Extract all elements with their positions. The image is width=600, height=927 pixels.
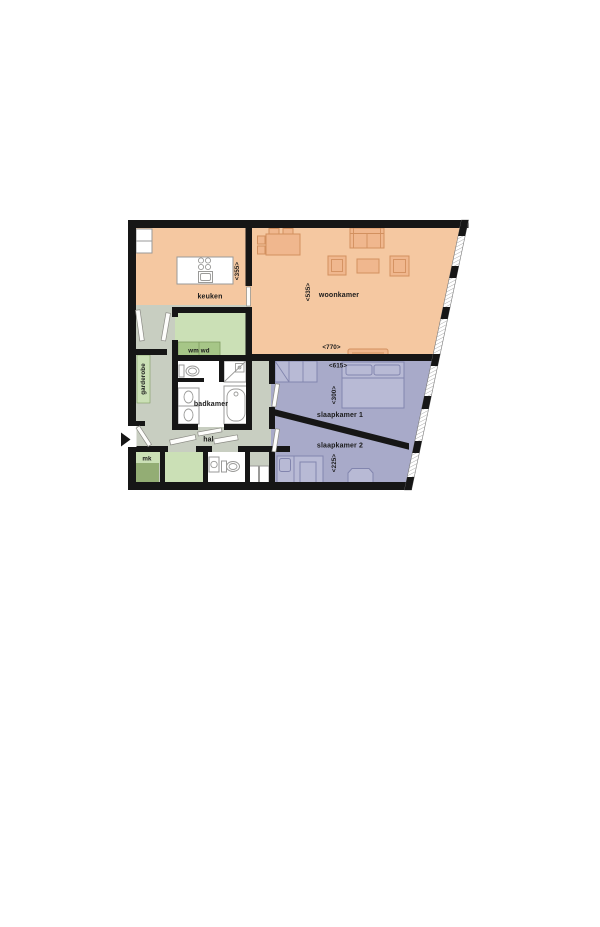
wall-bathroom-left — [172, 361, 178, 430]
pillow — [374, 365, 400, 375]
armchair — [328, 256, 346, 275]
dim-keuken-depth: <355> — [234, 262, 241, 281]
dim-slaapkamer1-height: <300> — [331, 386, 338, 405]
entrance-gap — [128, 426, 137, 447]
wall-hall-bedroom-c — [269, 452, 275, 487]
wall-top — [128, 220, 469, 228]
floor-plan-page: keuken <355> woonkamer <535> <770> wm wd… — [0, 0, 600, 927]
wall-kitchen-bottom — [172, 307, 252, 313]
label-woonkamer: woonkamer — [318, 292, 359, 299]
pillow — [280, 459, 291, 472]
wall-storage-wc — [203, 446, 208, 487]
kitchen-tall-cabinet — [136, 229, 152, 241]
wall-wmwd-right — [246, 307, 253, 361]
wall-wc-right — [245, 446, 250, 487]
wall-kitchen-living — [246, 220, 253, 286]
wall-wmwd-left-a — [172, 307, 178, 317]
wall-toilet-stub — [178, 378, 204, 382]
wall-living-bedroom — [250, 354, 433, 361]
kitchen-tall-cabinet — [136, 241, 152, 253]
wall-bathroom-right — [246, 361, 252, 430]
wall-bathroom-bottom-a — [172, 424, 198, 430]
dim-woonkamer-height: <535> — [305, 283, 312, 302]
dining-chair — [258, 236, 266, 244]
label-slaapkamer1: slaapkamer 1 — [317, 412, 363, 419]
label-garderobe: garderobe — [140, 363, 147, 395]
room-storage-fill — [163, 452, 203, 484]
label-slaapkamer2: slaapkamer 2 — [317, 443, 363, 450]
toilet-tank — [179, 365, 184, 377]
label-mk: mk — [142, 456, 152, 463]
dim-slaapkamer2-height: <225> — [331, 454, 338, 473]
cabinet — [300, 462, 316, 483]
wardrobe-bedroom2 — [348, 469, 373, 485]
room-mk-dark-fill — [136, 463, 159, 483]
pillow — [346, 365, 372, 375]
wall-bathroom-bottom-b — [224, 424, 252, 430]
wall-mk-right — [160, 446, 165, 487]
dim-woonkamer-width: <770> — [322, 344, 341, 351]
label-hal: hal — [203, 437, 214, 444]
wall-bathroom-top — [172, 355, 252, 361]
dim-slaapkamer1-width: <615> — [329, 363, 348, 370]
wardrobe-bedroom1 — [275, 361, 317, 382]
floor-plan-canvas: keuken <355> woonkamer <535> <770> wm wd… — [0, 0, 600, 927]
coffee-table — [357, 259, 379, 273]
wall-left — [128, 220, 136, 490]
shaft-box — [250, 466, 259, 483]
wall-shower-stub — [219, 361, 224, 382]
wall-entrance-stub — [135, 421, 145, 426]
wall-garderobe-stub — [135, 349, 167, 355]
dining-chair — [258, 246, 266, 254]
label-keuken: keuken — [197, 294, 222, 301]
kitchen-living-door-leaf — [247, 287, 251, 306]
toilet-icon — [186, 366, 199, 376]
label-badkamer: badkamer — [194, 401, 228, 408]
armchair — [390, 256, 409, 276]
wc-toilet-icon — [227, 462, 240, 472]
wc-toilet-tank — [222, 461, 227, 472]
label-wm-wd: wm wd — [187, 348, 209, 355]
dining-table — [266, 234, 300, 255]
shaft-box — [260, 466, 270, 483]
